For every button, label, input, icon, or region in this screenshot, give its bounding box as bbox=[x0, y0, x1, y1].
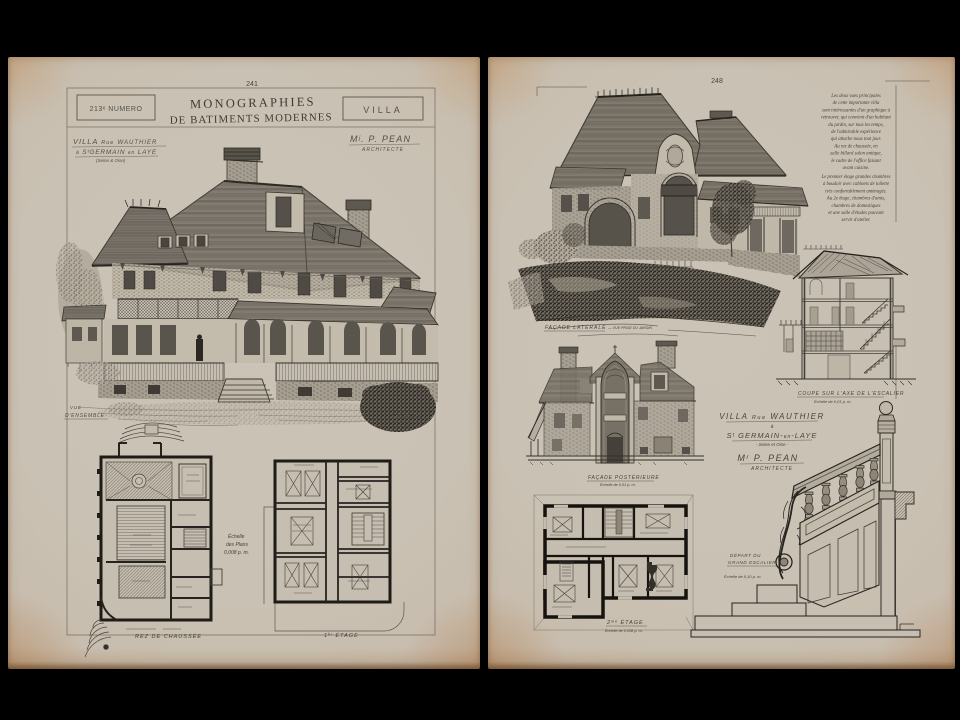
svg-text:ARCHITECTE: ARCHITECTE bbox=[361, 147, 404, 153]
svg-text:et une salle d'études pouvant: et une salle d'études pouvant bbox=[828, 211, 884, 216]
svg-text:retrouver, qui convient d'un h: retrouver, qui convient d'un habitant bbox=[821, 116, 891, 121]
svg-text:Échelle: Échelle bbox=[228, 533, 245, 540]
svg-text:Échelle de 0,01 p. m.: Échelle de 0,01 p. m. bbox=[814, 399, 852, 404]
svg-text:Échelle de 0,10 p. m.: Échelle de 0,10 p. m. bbox=[724, 574, 762, 579]
svg-text:FAÇADE LATÉRALE: FAÇADE LATÉRALE bbox=[545, 324, 607, 331]
svg-text:(Seine & Oise): (Seine & Oise) bbox=[96, 158, 126, 163]
svg-text:VILLA Rue WAUTHIER: VILLA Rue WAUTHIER bbox=[719, 412, 825, 421]
svg-text:à: à bbox=[771, 424, 774, 430]
svg-text:des Plans: des Plans bbox=[226, 542, 248, 548]
svg-text:du jardin, sur tous les temps,: du jardin, sur tous les temps, bbox=[828, 123, 883, 128]
svg-text:servir d'atelier.: servir d'atelier. bbox=[841, 218, 870, 223]
svg-text:Les deux vues principales: Les deux vues principales bbox=[830, 94, 881, 99]
svg-text:à boudoir avec cabinets de toi: à boudoir avec cabinets de toilette bbox=[823, 182, 890, 187]
svg-text:REZ DE CHAUSSÉE: REZ DE CHAUSSÉE bbox=[135, 633, 202, 640]
svg-text:Au 2e étage, chambres d'amis,: Au 2e étage, chambres d'amis, bbox=[826, 197, 885, 202]
svg-text:Sᵗ GERMAIN-en-LAYE: Sᵗ GERMAIN-en-LAYE bbox=[727, 431, 818, 440]
svg-text:Échelle de 0,01 p. m.: Échelle de 0,01 p. m. bbox=[600, 482, 636, 487]
svg-text:0,008 p. m.: 0,008 p. m. bbox=[224, 550, 249, 556]
svg-text:de l'admirable expérience: de l'admirable expérience bbox=[831, 130, 882, 135]
svg-text:avant cuisine.: avant cuisine. bbox=[843, 166, 870, 171]
svg-text:241: 241 bbox=[246, 81, 258, 88]
svg-text:GRAND ESCALIER: GRAND ESCALIER bbox=[728, 560, 776, 565]
svg-text:ARCHITECTE: ARCHITECTE bbox=[750, 466, 793, 472]
svg-text:VUE: VUE bbox=[70, 405, 82, 410]
svg-text:VILLA: VILLA bbox=[363, 105, 403, 115]
svg-text:très confortablement aménagés.: très confortablement aménagés. bbox=[825, 189, 886, 194]
svg-text:D'ENSEMBLE: D'ENSEMBLE bbox=[65, 413, 105, 419]
svg-text:Mʳ P. PEAN: Mʳ P. PEAN bbox=[737, 453, 798, 463]
svg-text:VILLA Rue WAUTHIER: VILLA Rue WAUTHIER bbox=[73, 137, 157, 146]
svg-text:de cette importante villa: de cette importante villa bbox=[833, 101, 880, 106]
svg-text:FAÇADE POSTÉRIEURE: FAÇADE POSTÉRIEURE bbox=[588, 474, 660, 481]
svg-text:Échelle de 0,008 p. m.: Échelle de 0,008 p. m. bbox=[605, 628, 643, 633]
svg-text:sont intéressantes d'un graphi: sont intéressantes d'un graphique à bbox=[822, 108, 891, 113]
svg-text:- Seine et Oise -: - Seine et Oise - bbox=[756, 442, 789, 447]
svg-text:213⁯ᵉ NUMERO: 213⁯ᵉ NUMERO bbox=[90, 106, 143, 113]
svg-text:FAÇADES: FAÇADES bbox=[393, 414, 422, 420]
svg-text:DE BATIMENTS MODERNES: DE BATIMENTS MODERNES bbox=[170, 111, 333, 126]
svg-text:DÉPART DU: DÉPART DU bbox=[730, 552, 761, 558]
svg-text:Au rez de chaussée, en: Au rez de chaussée, en bbox=[833, 144, 878, 149]
svg-text:MONOGRAPHIES: MONOGRAPHIES bbox=[190, 95, 316, 112]
svg-text:Mʲ. P. PEAN: Mʲ. P. PEAN bbox=[350, 134, 411, 144]
svg-text:à SᵗGERMAIN en LAYE: à SᵗGERMAIN en LAYE bbox=[76, 149, 157, 156]
svg-text:chambres de domestiques: chambres de domestiques bbox=[831, 204, 880, 209]
svg-text:1ᵇʳ ÉTAGE: 1ᵇʳ ÉTAGE bbox=[324, 632, 359, 639]
svg-text:2ᵐᵉ ÉTAGE: 2ᵐᵉ ÉTAGE bbox=[606, 619, 644, 626]
svg-text:248: 248 bbox=[711, 78, 723, 85]
svg-text:Le premier étage grandes chamb: Le premier étage grandes chambres bbox=[821, 175, 891, 180]
svg-text:le cadre de l'office faisant: le cadre de l'office faisant bbox=[831, 159, 881, 164]
svg-text:salle billard salon antique,: salle billard salon antique, bbox=[830, 152, 882, 157]
svg-text:COUPE SUR L'AXE DE L'ESCALIER: COUPE SUR L'AXE DE L'ESCALIER bbox=[798, 391, 904, 397]
svg-text:— VUE PRISE DU JARDIN: — VUE PRISE DU JARDIN bbox=[607, 326, 652, 330]
svg-text:qui attache nous tout jour.: qui attache nous tout jour. bbox=[831, 137, 881, 142]
